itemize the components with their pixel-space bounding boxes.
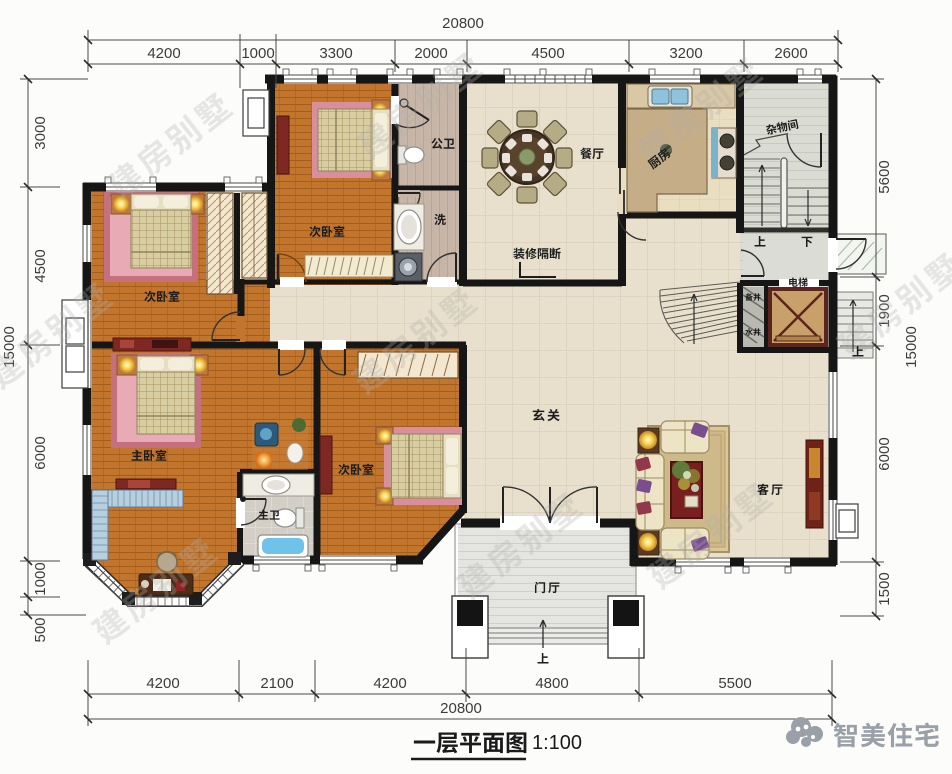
- svg-text:4800: 4800: [535, 675, 568, 692]
- svg-text:6000: 6000: [876, 437, 893, 470]
- svg-text:4200: 4200: [373, 675, 406, 692]
- svg-text:4200: 4200: [146, 675, 179, 692]
- svg-text:4500: 4500: [32, 249, 49, 282]
- svg-text:4500: 4500: [531, 45, 564, 62]
- svg-text:3300: 3300: [319, 45, 352, 62]
- svg-text:1000: 1000: [241, 45, 274, 62]
- svg-text:15000: 15000: [903, 326, 920, 368]
- svg-text:3000: 3000: [32, 116, 49, 149]
- svg-text:1000: 1000: [32, 562, 49, 595]
- svg-text:3200: 3200: [669, 45, 702, 62]
- svg-text:2600: 2600: [774, 45, 807, 62]
- svg-text:20800: 20800: [440, 700, 482, 717]
- svg-text:6000: 6000: [32, 436, 49, 469]
- svg-text:4200: 4200: [147, 45, 180, 62]
- svg-text:2100: 2100: [260, 675, 293, 692]
- svg-text:20800: 20800: [442, 15, 484, 32]
- svg-text:500: 500: [32, 617, 49, 642]
- svg-text:1:100: 1:100: [532, 732, 582, 754]
- svg-text:5500: 5500: [718, 675, 751, 692]
- svg-text:2000: 2000: [414, 45, 447, 62]
- svg-text:5600: 5600: [876, 160, 893, 193]
- svg-text:1500: 1500: [876, 572, 893, 605]
